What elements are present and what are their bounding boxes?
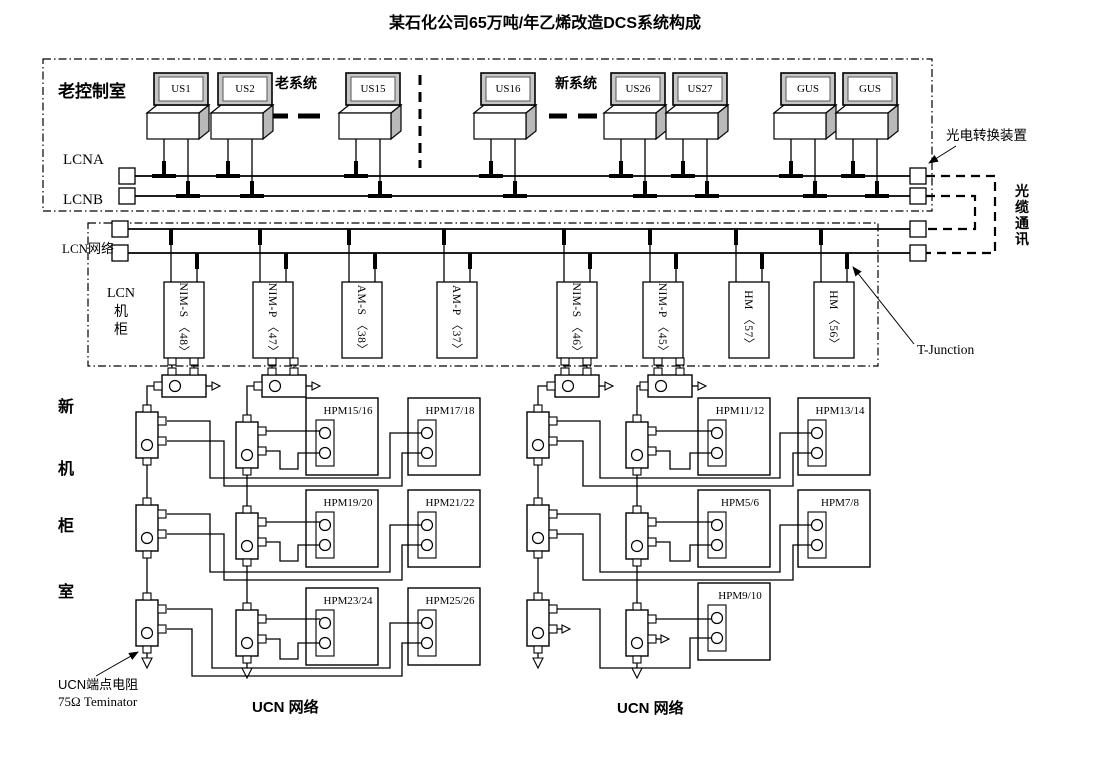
- optical-converter-node: [910, 188, 926, 204]
- ucn-tap: [527, 498, 557, 558]
- hpm-label: HPM11/12: [716, 405, 765, 417]
- workstation-label: US26: [625, 83, 651, 95]
- fiber-cable-inner: [926, 196, 975, 229]
- lcn-cabinet-line: 机: [114, 304, 128, 320]
- hpm-label: HPM7/8: [821, 497, 859, 509]
- lcn-network: LCN网络 LCN 机 柜: [62, 221, 974, 366]
- page-title: 某石化公司65万吨/年乙烯改造DCS系统构成: [388, 13, 701, 32]
- fiber-comm-vertical-label: 光 缆 通 讯: [1014, 183, 1029, 247]
- ucn-wires: [147, 386, 421, 676]
- lcn-cabinet-line: LCN: [107, 286, 135, 301]
- workstation-label: GUS: [797, 83, 819, 95]
- fiber-comm-char: 通: [1015, 215, 1029, 231]
- t-junction-label: T-Junction: [917, 342, 974, 357]
- lcn-module-label: NIM-S 〈46〉: [570, 283, 583, 358]
- lcn-left-node: [112, 245, 128, 261]
- ucn-terminator-arrow: [656, 635, 669, 643]
- hpm-label: HPM19/20: [324, 497, 373, 509]
- dcs-architecture-page: 某石化公司65万吨/年乙烯改造DCS系统构成 老控制室 老系统 新系统 LCNA…: [0, 0, 1099, 766]
- hpm-label: HPM13/14: [816, 405, 865, 417]
- lcn-module-label: AM-S 〈38〉: [355, 285, 368, 356]
- ucn-network-left-label: UCN 网络: [252, 698, 319, 716]
- ucn-terminator-arrow: [632, 663, 642, 678]
- lcn-network-label: LCN网络: [62, 241, 114, 256]
- old-control-room-label: 老控制室: [57, 81, 126, 101]
- ucn-terminator-annotation: UCN端点电阻 75Ω Teminator: [58, 652, 138, 709]
- lcn-module-label: HM 〈57〉: [742, 290, 755, 349]
- ucn-terminator-arrow: [142, 653, 152, 668]
- ucn-terminator-label-en: 75Ω Teminator: [58, 694, 138, 709]
- hpm-label: HPM23/24: [324, 595, 373, 607]
- ucn-network-left: HPM15/16 HPM17/18 HPM19/20 HPM21/22 HPM2…: [136, 368, 480, 716]
- operator-stations: US1 US2 US15 US16 US26 US27 GUS GUS: [147, 73, 898, 198]
- ucn-tap: [236, 603, 266, 663]
- optical-converter-arrow: [929, 146, 956, 163]
- ucn-tap: [236, 506, 266, 566]
- lcn-cabinet-line: 柜: [114, 322, 128, 338]
- lcn-cabinet-label: LCN 机 柜: [107, 286, 135, 338]
- ucn-tap: [527, 593, 557, 653]
- hpm-label: HPM25/26: [426, 595, 475, 607]
- ucn-terminator-arrow-line: [96, 652, 138, 676]
- lcn-module-label: AM-P 〈37〉: [450, 285, 463, 355]
- workstation-label: US15: [360, 83, 386, 95]
- lcn-left-node: [112, 221, 128, 237]
- ucn-tap: [626, 506, 656, 566]
- room-char: 柜: [58, 516, 74, 535]
- hpm-label: HPM5/6: [721, 497, 759, 509]
- workstation-label: US1: [171, 83, 191, 95]
- lcn-module-label: NIM-S 〈48〉: [177, 283, 190, 358]
- workstation-label: US2: [235, 83, 255, 95]
- lcn-modules: NIM-S 〈48〉 NIM-P 〈47〉 AM-S 〈38〉 AM-P 〈37…: [164, 282, 854, 358]
- hpm-label: HPM21/22: [426, 497, 475, 509]
- ucn-terminator-label-cn: UCN端点电阻: [58, 677, 138, 692]
- room-char: 室: [58, 582, 74, 601]
- ucn-tap: [527, 405, 557, 465]
- lcn-module-label: NIM-P 〈47〉: [266, 283, 279, 358]
- lcna-left-node: [119, 168, 135, 184]
- workstation-label: US27: [687, 83, 713, 95]
- new-system-label: 新系统: [555, 75, 597, 91]
- ucn-wires: [538, 386, 812, 668]
- hpm-label: HPM15/16: [324, 405, 373, 417]
- lcna-label: LCNA: [63, 152, 104, 168]
- ucn-tap: [136, 405, 166, 465]
- room-char: 机: [58, 459, 74, 478]
- ucn-network-right-label: UCN 网络: [617, 699, 684, 717]
- workstation-label: US16: [495, 83, 521, 95]
- ucn-tap: [547, 368, 613, 397]
- optical-converter-node: [910, 221, 926, 237]
- hpm-label: HPM9/10: [718, 590, 762, 602]
- ucn-tap: [136, 498, 166, 558]
- module-drop-lines: [171, 229, 847, 282]
- room-char: 新: [58, 397, 74, 416]
- ucn-tap: [640, 368, 706, 397]
- ucn-terminator-arrow: [533, 653, 543, 668]
- fiber-cable-outer: [926, 176, 995, 253]
- optical-converter-node: [910, 168, 926, 184]
- ucn-tap: [236, 415, 266, 475]
- ucn-tap: [136, 593, 166, 653]
- optical-converter-node: [910, 245, 926, 261]
- t-junction-arrow: [853, 267, 914, 344]
- fiber-optic-link: 光电转换装置 光 缆 通 讯: [910, 128, 1029, 261]
- ucn-terminator-arrow: [557, 625, 570, 633]
- ucn-tap: [626, 415, 656, 475]
- fiber-comm-char: 缆: [1015, 199, 1029, 215]
- old-control-room: 老控制室 老系统 新系统 LCNA LCNB US1 US2 US15: [43, 59, 932, 211]
- bus-t-junction-ticks: [169, 229, 849, 269]
- hpm-label: HPM17/18: [426, 405, 475, 417]
- ucn-tap: [254, 368, 320, 397]
- lcnb-left-node: [119, 188, 135, 204]
- new-cabinet-room-label: 新 机 柜 室: [58, 397, 74, 601]
- old-system-label: 老系统: [275, 75, 317, 91]
- workstation-label: GUS: [859, 83, 881, 95]
- ucn-tap: [626, 603, 656, 663]
- lcn-module-label: NIM-P 〈45〉: [656, 283, 669, 358]
- fiber-comm-char: 光: [1014, 183, 1029, 199]
- lcn-module-label: HM 〈56〉: [827, 290, 840, 349]
- ucn-network-right: HPM11/12 HPM13/14 HPM5/6 HPM7/8 HPM9/10 …: [527, 368, 870, 717]
- ucn-tap: [154, 368, 220, 397]
- lcnb-label: LCNB: [63, 192, 103, 208]
- fiber-comm-char: 讯: [1015, 231, 1029, 247]
- dcs-diagram: 某石化公司65万吨/年乙烯改造DCS系统构成 老控制室 老系统 新系统 LCNA…: [0, 0, 1099, 766]
- optical-converter-label: 光电转换装置: [946, 128, 1027, 143]
